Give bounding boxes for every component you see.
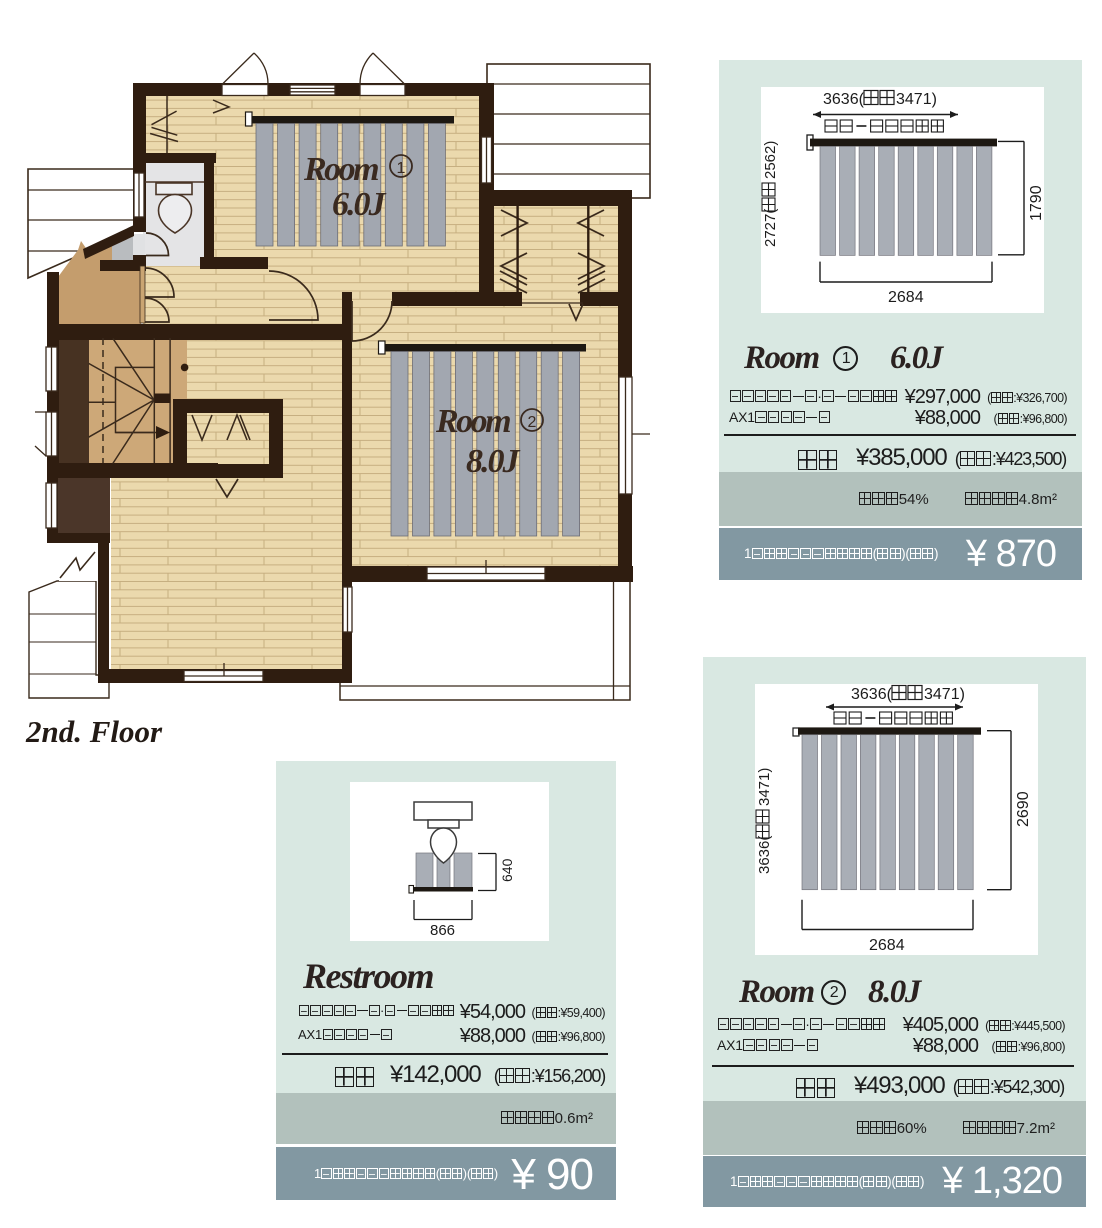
svg-text:2727(: 2727( bbox=[762, 209, 779, 247]
svg-text:3636(: 3636( bbox=[823, 91, 865, 108]
svg-text:3471): 3471) bbox=[924, 686, 965, 703]
svg-text:6.0J: 6.0J bbox=[332, 186, 387, 223]
svg-text:866: 866 bbox=[430, 922, 455, 939]
svg-text:1: 1 bbox=[397, 160, 406, 177]
svg-text:3636(: 3636( bbox=[851, 686, 893, 703]
svg-text:3471): 3471) bbox=[756, 768, 773, 806]
svg-text:2nd. Floor: 2nd. Floor bbox=[25, 714, 163, 749]
svg-text:2684: 2684 bbox=[888, 289, 924, 306]
svg-text:Room: Room bbox=[303, 151, 378, 188]
svg-text:2: 2 bbox=[528, 414, 537, 431]
svg-text:8.0J: 8.0J bbox=[466, 443, 521, 480]
svg-text:3471): 3471) bbox=[896, 91, 937, 108]
svg-text:2684: 2684 bbox=[869, 937, 905, 954]
svg-text:Room: Room bbox=[435, 403, 510, 440]
svg-text:2690: 2690 bbox=[1015, 791, 1032, 827]
svg-text:640: 640 bbox=[499, 858, 515, 882]
svg-text:3636(: 3636( bbox=[756, 836, 773, 874]
svg-text:1790: 1790 bbox=[1028, 185, 1044, 221]
svg-text:2562): 2562) bbox=[762, 141, 779, 179]
